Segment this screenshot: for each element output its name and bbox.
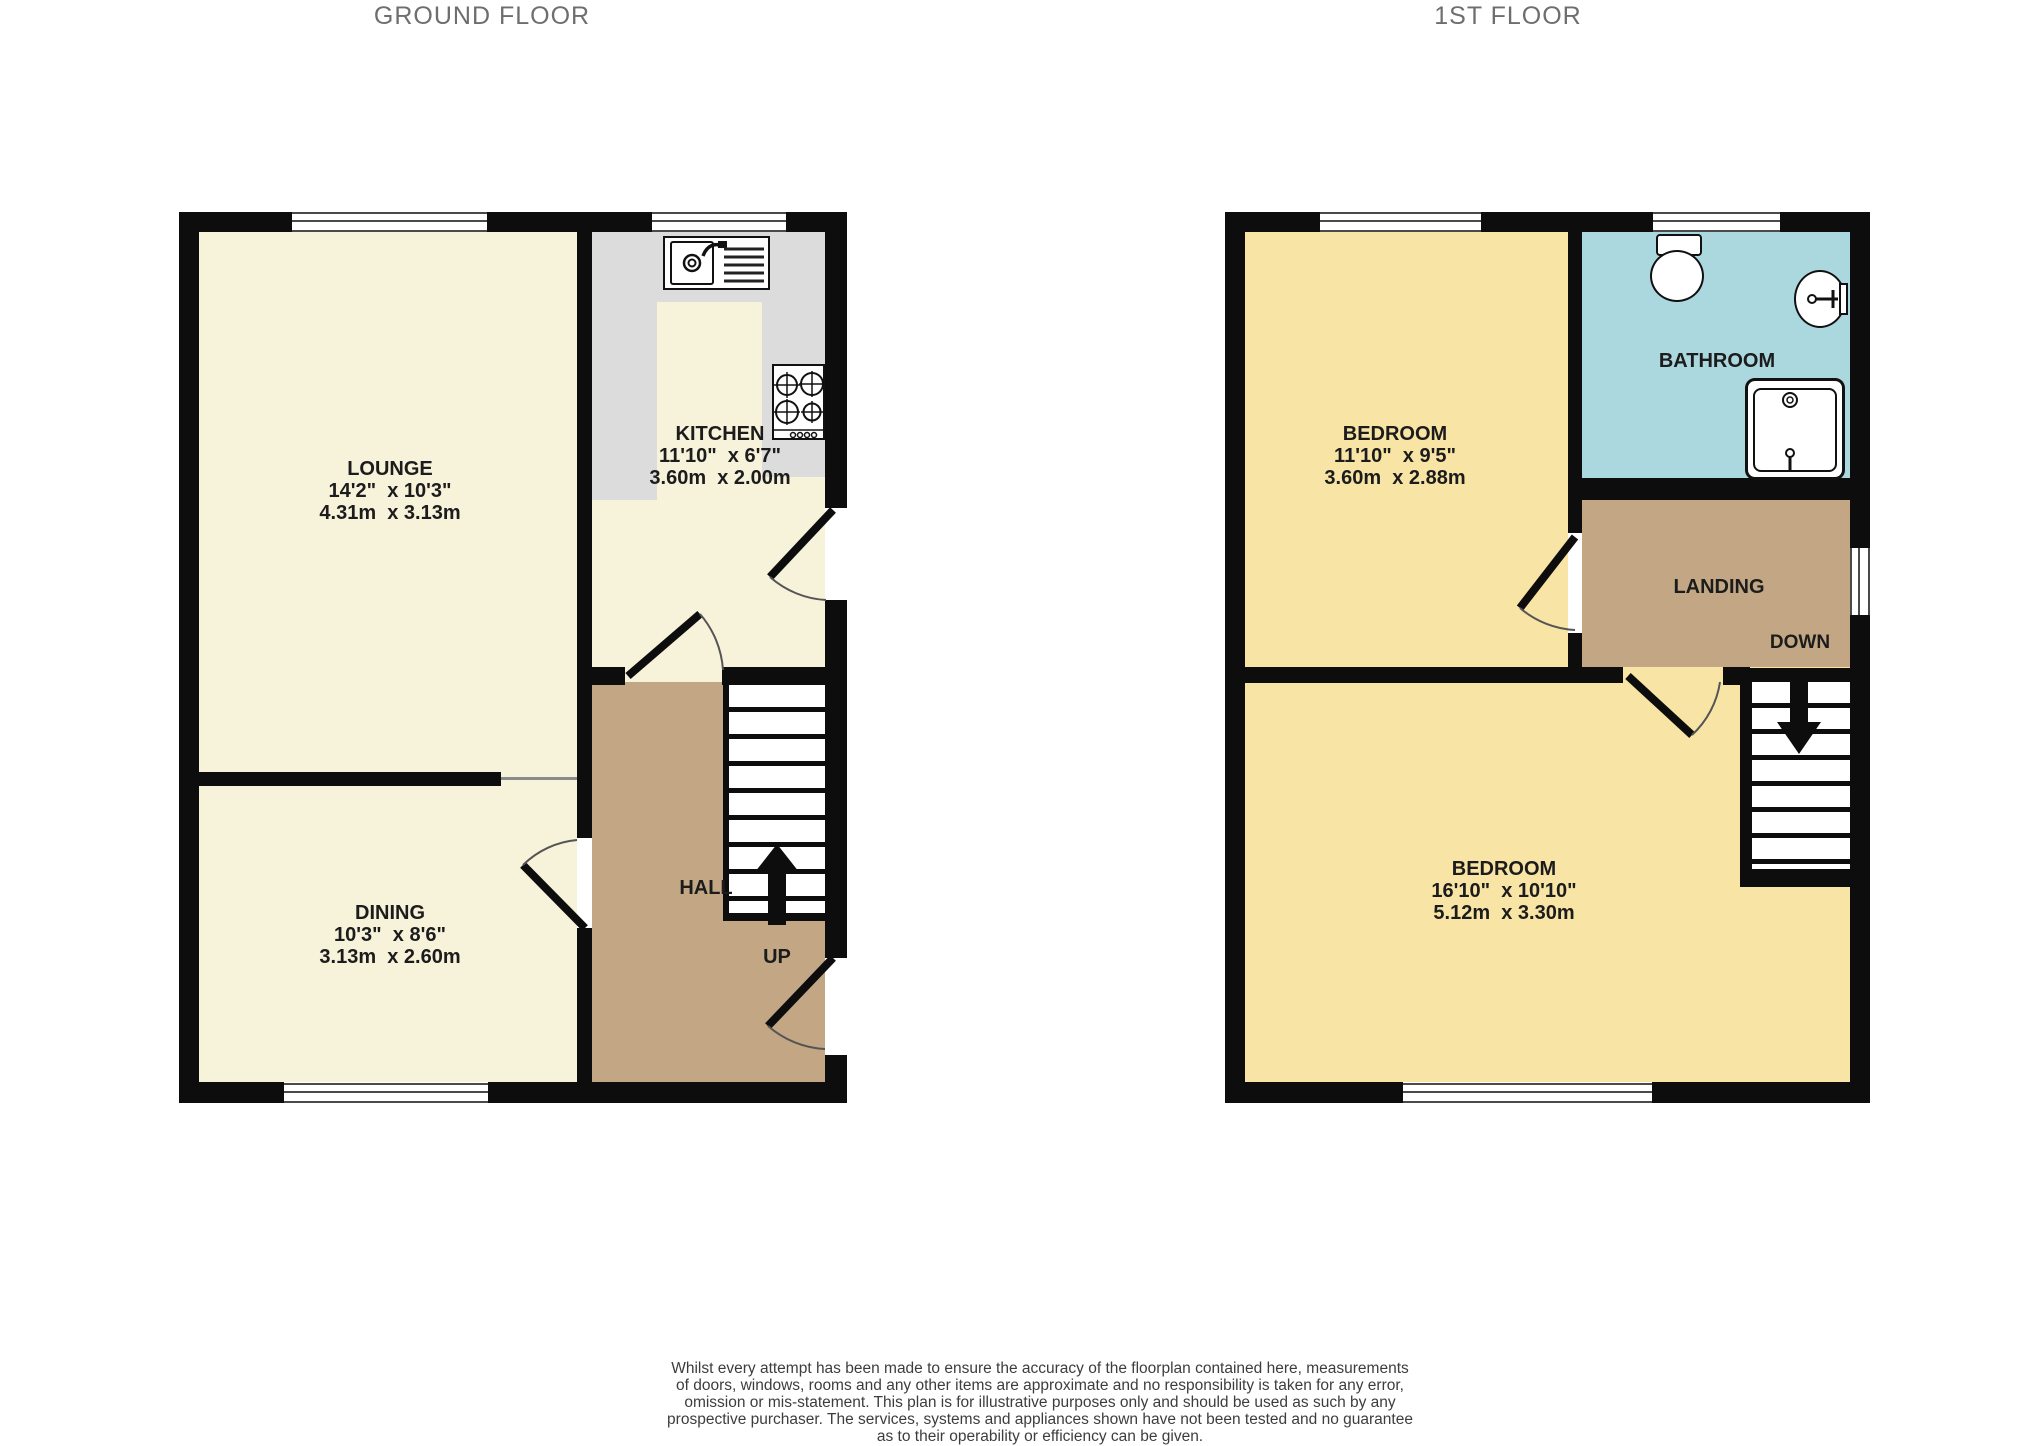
- dining-hall-door: [523, 840, 585, 928]
- bathtub-details: [1783, 393, 1797, 472]
- basin-details: [1808, 290, 1838, 308]
- bedroom2-imperial: 16'10" x 10'10": [1384, 880, 1624, 902]
- dining-name: DINING: [270, 902, 510, 924]
- kitchen-metric: 3.60m x 2.00m: [600, 467, 840, 489]
- kitchen-back-door: [770, 510, 833, 600]
- lounge-label: LOUNGE 14'2" x 10'3" 4.31m x 3.13m: [270, 458, 510, 524]
- kitchen-name: KITCHEN: [600, 423, 840, 445]
- disclaimer-line: as to their operability or efficiency ca…: [640, 1428, 1440, 1445]
- front-door: [768, 958, 833, 1049]
- up-label: UP: [737, 946, 817, 969]
- door-swing-overlay: [0, 0, 2040, 1446]
- bedroom2-metric: 5.12m x 3.30m: [1384, 902, 1624, 924]
- lounge-metric: 4.31m x 3.13m: [270, 502, 510, 524]
- bedroom1-name: BEDROOM: [1275, 423, 1515, 445]
- dining-imperial: 10'3" x 8'6": [270, 924, 510, 946]
- hall-label: HALL: [646, 877, 766, 900]
- kitchen-label: KITCHEN 11'10" x 6'7" 3.60m x 2.00m: [600, 423, 840, 489]
- bathroom-label: BATHROOM: [1597, 350, 1837, 373]
- lounge-imperial: 14'2" x 10'3": [270, 480, 510, 502]
- disclaimer-line: of doors, windows, rooms and any other i…: [640, 1377, 1440, 1394]
- bedroom2-name: BEDROOM: [1384, 858, 1624, 880]
- lounge-name: LOUNGE: [270, 458, 510, 480]
- landing-label: LANDING: [1599, 576, 1839, 599]
- disclaimer: Whilst every attempt has been made to en…: [640, 1360, 1440, 1446]
- bedroom1-label: BEDROOM 11'10" x 9'5" 3.60m x 2.88m: [1275, 423, 1515, 489]
- disclaimer-line: prospective purchaser. The services, sys…: [640, 1411, 1440, 1428]
- bedroom1-metric: 3.60m x 2.88m: [1275, 467, 1515, 489]
- floorplan-canvas: GROUND FLOOR 1ST FLOOR: [0, 0, 2040, 1446]
- down-arrow-icon: [1777, 675, 1821, 754]
- bedroom1-imperial: 11'10" x 9'5": [1275, 445, 1515, 467]
- bedroom2-door: [1628, 676, 1720, 735]
- down-label: DOWN: [1720, 632, 1880, 654]
- bedroom2-label: BEDROOM 16'10" x 10'10" 5.12m x 3.30m: [1384, 858, 1624, 924]
- kitchen-imperial: 11'10" x 6'7": [600, 445, 840, 467]
- sink-details: [684, 241, 764, 281]
- kitchen-hall-door: [628, 614, 723, 676]
- disclaimer-line: omission or mis-statement. This plan is …: [640, 1394, 1440, 1411]
- disclaimer-line: Whilst every attempt has been made to en…: [640, 1360, 1440, 1377]
- dining-label: DINING 10'3" x 8'6" 3.13m x 2.60m: [270, 902, 510, 968]
- bedroom1-door: [1520, 537, 1575, 630]
- dining-metric: 3.13m x 2.60m: [270, 946, 510, 968]
